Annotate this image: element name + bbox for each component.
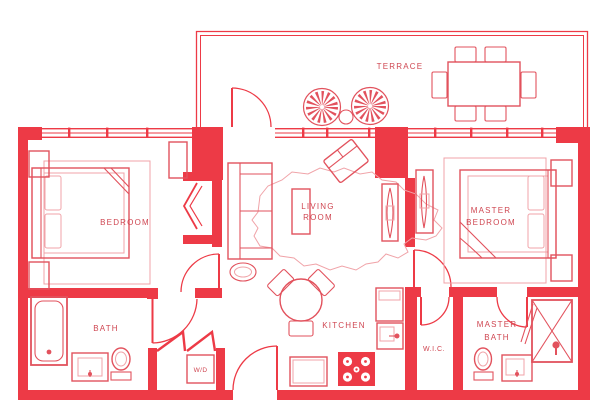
master-bath-label-line2: BATH: [484, 333, 510, 342]
kitchen-sink-cabinet: [377, 323, 403, 349]
terrace-outline: [197, 32, 588, 128]
window-walls: [42, 128, 556, 138]
master-bedroom-label-line1: MASTER: [471, 206, 512, 215]
window-bedroom: [42, 128, 192, 138]
bedroom-label: BEDROOM: [100, 218, 150, 227]
round-lounge-chair: [352, 88, 389, 125]
kitchen-counter: [290, 357, 327, 386]
washer-dryer-closet: [157, 332, 215, 383]
window-master: [408, 128, 556, 138]
bedroom-furniture: [29, 142, 202, 289]
bedroom-nightstand: [29, 262, 49, 289]
washer-dryer-label: W/D: [194, 367, 208, 374]
master-vanity-sink: [502, 355, 532, 381]
floorplan-canvas: TERRACE LIVING ROOM BEDROOM MASTER BEDRO…: [0, 0, 600, 414]
round-lounge-chair: [304, 89, 341, 126]
entry-door: [233, 346, 277, 390]
master-nightstand: [551, 160, 572, 186]
sofa: [228, 163, 272, 259]
master-nightstand: [551, 255, 572, 281]
bath-furniture: [31, 297, 131, 381]
bath-label: BATH: [93, 324, 119, 333]
kitchen-label: KITCHEN: [322, 321, 366, 330]
window-living: [275, 128, 375, 138]
shower: [532, 300, 572, 362]
bathtub: [31, 297, 67, 365]
coffee-table: [292, 189, 310, 234]
refrigerator: [376, 288, 403, 321]
oval-side-table: [230, 263, 256, 281]
bath-door: [153, 299, 198, 343]
walk-in-closet-label: W.I.C.: [423, 346, 445, 353]
bedroom-door: [181, 254, 219, 292]
master-bedroom-label-line2: BEDROOM: [466, 218, 516, 227]
tv-console-living: [382, 184, 398, 241]
terrace-door: [232, 88, 271, 127]
shower-door: [521, 304, 537, 344]
bath-toilet: [111, 348, 131, 380]
living-room-label-line1: LIVING: [301, 202, 334, 211]
walk-in-closet-door: [421, 297, 449, 325]
terrace-side-table: [339, 110, 353, 124]
terrace-furniture: [304, 47, 537, 126]
floorplan-page: TERRACE LIVING ROOM BEDROOM MASTER BEDRO…: [0, 0, 600, 414]
angled-armchair: [323, 139, 369, 183]
stove: [338, 352, 375, 386]
bath-vanity-sink: [72, 353, 108, 381]
living-room-label-line2: ROOM: [303, 213, 333, 222]
terrace-label: TERRACE: [377, 62, 424, 71]
bedroom-closet-bifold: [184, 183, 202, 229]
tv-console-master: [416, 170, 433, 233]
terrace-dining-table: [432, 47, 536, 121]
bedroom-bed: [32, 168, 129, 258]
master-bath-label-line1: MASTER: [477, 320, 518, 329]
master-bedroom-door: [414, 250, 451, 287]
master-toilet: [474, 348, 493, 380]
